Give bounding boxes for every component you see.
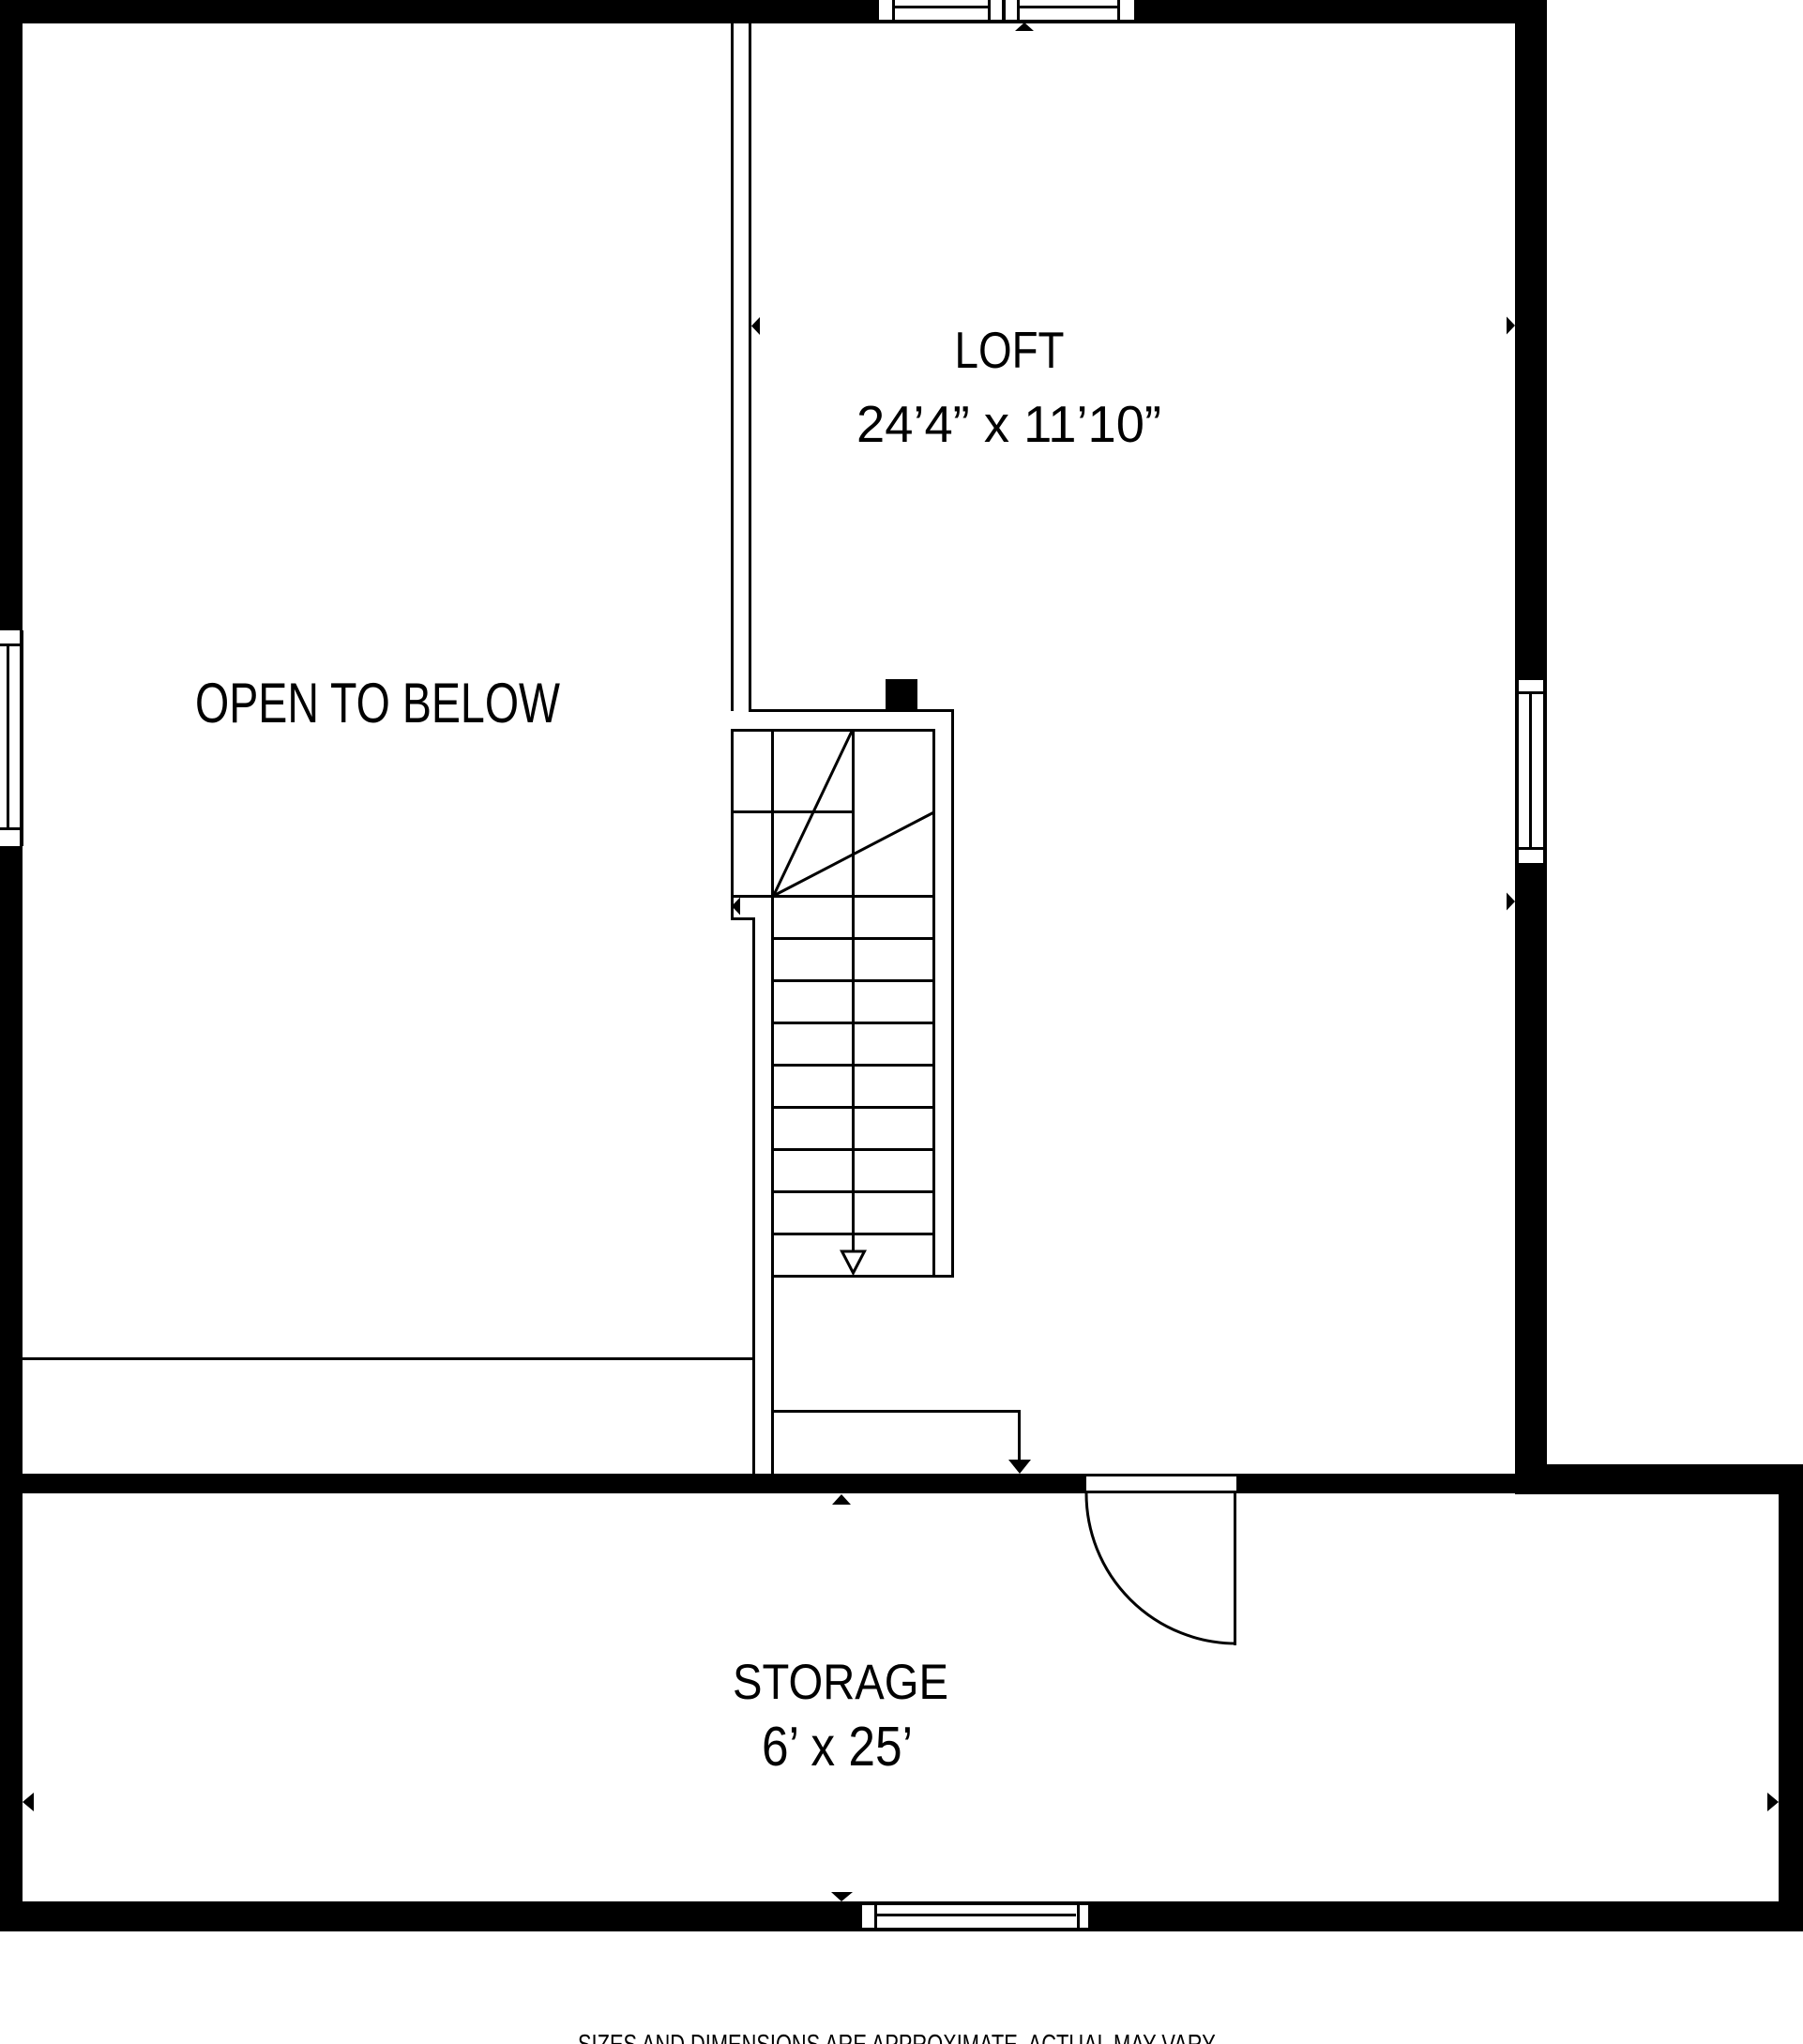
svg-text:6’ x 25’: 6’ x 25’ [762,1716,913,1778]
svg-text:SIZES AND DIMENSIONS ARE APPRO: SIZES AND DIMENSIONS ARE APPROXIMATE, AC… [578,2030,1219,2044]
svg-text:OPEN TO BELOW: OPEN TO BELOW [195,672,560,734]
svg-text:24’4” x 11’10”: 24’4” x 11’10” [856,396,1161,453]
svg-text:STORAGE: STORAGE [733,1655,948,1710]
svg-text:LOFT: LOFT [955,321,1065,379]
